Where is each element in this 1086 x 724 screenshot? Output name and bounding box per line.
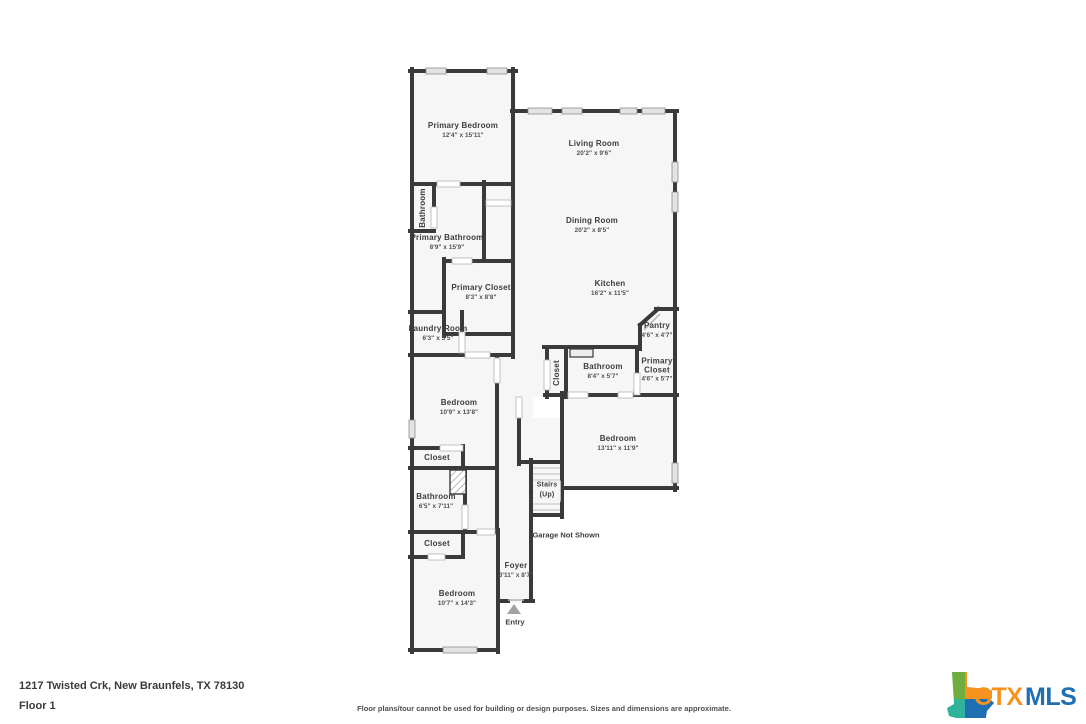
room-label-closet-1: Closet: [424, 453, 450, 463]
entry-label: Entry: [505, 618, 524, 627]
room-label-pantry: Pantry 4'6" x 4'7": [641, 321, 672, 339]
logo-mls: MLS: [1025, 683, 1076, 711]
floor-plan-drawing: [0, 0, 1086, 724]
room-label-closet-2: Closet: [424, 539, 450, 549]
room-label-foyer: Foyer 3'11" x 8'7": [499, 561, 533, 579]
room-label-kitchen: Kitchen 16'2" x 11'5": [591, 279, 629, 297]
room-label-bedroom-2: Bedroom 13'11" x 11'9": [597, 434, 638, 452]
room-label-bathroom-2: Bathroom 8'4" x 5'7": [583, 362, 622, 380]
logo-ctx: CTX: [974, 683, 1023, 711]
disclaimer: Floor plans/tour cannot be used for buil…: [357, 704, 731, 713]
hatched-chase: [450, 470, 466, 494]
ctxmls-logo: CTX MLS: [936, 668, 1078, 718]
room-label-bathroom-top: Bathroom: [418, 188, 428, 227]
floor-label: Floor 1: [19, 700, 56, 712]
room-label-closet-hall: Closet: [552, 360, 562, 386]
address: 1217 Twisted Crk, New Braunfels, TX 7813…: [19, 680, 244, 692]
floor-plan-page: Primary Bedroom 12'4" x 15'11" Living Ro…: [0, 0, 1086, 724]
room-label-laundry-room: Laundry Room 6'3" x 5'5": [409, 324, 468, 342]
bathroom-vanity: [570, 349, 593, 357]
room-label-primary-closet-1: Primary Closet 8'3" x 8'8": [451, 283, 510, 301]
room-label-primary-closet-2: Primary Closet 4'6" x 5'7": [634, 357, 680, 384]
entry-arrow-icon: [507, 604, 521, 614]
room-label-bedroom-1: Bedroom 10'9" x 13'8": [440, 398, 478, 416]
room-label-living-room: Living Room 20'2" x 9'6": [569, 139, 620, 157]
room-label-bathroom-3: Bathroom 6'5" x 7'11": [416, 492, 455, 510]
garage-note: Garage Not Shown: [532, 531, 599, 540]
room-label-primary-bedroom: Primary Bedroom 12'4" x 15'11": [428, 121, 498, 139]
stairs-label: Stairs (Up): [534, 481, 561, 502]
room-label-bedroom-3: Bedroom 10'7" x 14'3": [438, 589, 476, 607]
room-label-primary-bathroom: Primary Bathroom 8'9" x 15'9": [411, 233, 484, 251]
room-label-dining-room: Dining Room 20'2" x 8'5": [566, 216, 618, 234]
